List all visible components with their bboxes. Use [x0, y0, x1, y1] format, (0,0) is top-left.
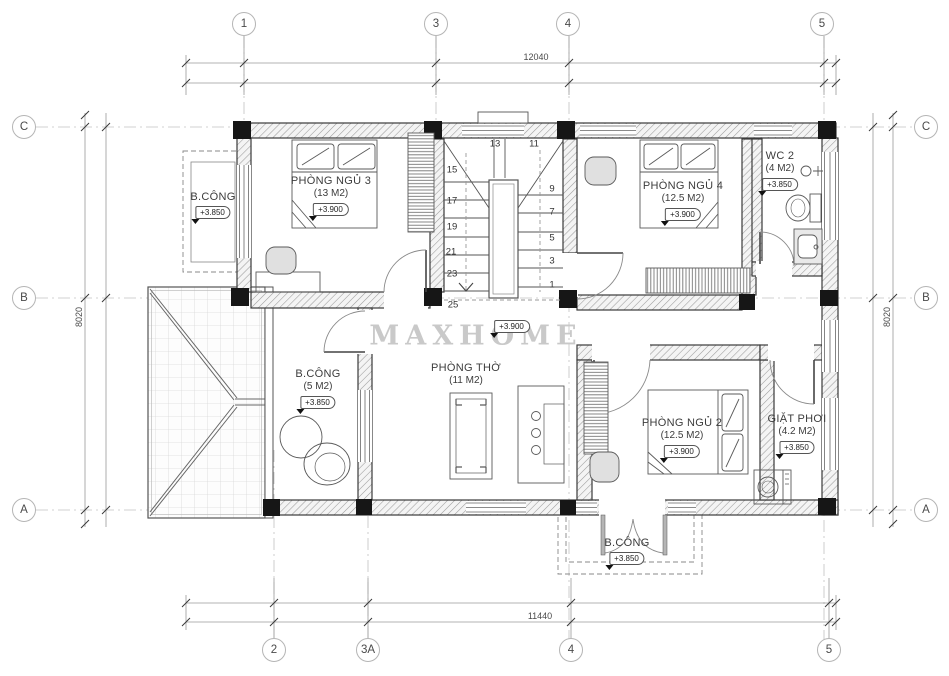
dimension-top: 12040 [523, 52, 548, 62]
room-label-bedroom4: PHÒNG NGỦ 4 (12.5 M2) +3.900 [643, 180, 723, 221]
level-tag: +3.850 [779, 441, 815, 454]
grid-bubble-right-b: B [914, 286, 938, 310]
dimension-left: 8020 [74, 307, 84, 327]
level-marker-icon [309, 216, 317, 221]
cabinet-icon [518, 386, 564, 483]
level-marker-icon [775, 454, 783, 459]
level-tag: +3.850 [300, 396, 336, 409]
room-area: (13 M2) [291, 188, 371, 200]
room-label-laundry: GIẶT PHƠI (4.2 M2) +3.850 [768, 413, 827, 454]
round-chair-icon [280, 416, 322, 458]
round-chair-icon [304, 443, 350, 485]
room-label-balcony-left: B.CÔNG (5 M2) +3.850 [295, 368, 340, 409]
grid-bubble-left-a: A [12, 498, 36, 522]
balcony-door-leaf [663, 515, 667, 555]
wardrobe-icon [408, 133, 434, 232]
altar-table-icon [450, 393, 492, 479]
level-tag: +3.900 [665, 208, 701, 221]
room-name: B.CÔNG [190, 191, 235, 203]
stair-number: 5 [549, 233, 554, 244]
level-tag: +3.850 [762, 178, 798, 191]
room-area: (11 M2) [431, 375, 501, 387]
grid-bubble-left-b: B [12, 286, 36, 310]
grid-bubble-bottom-2: 2 [262, 638, 286, 662]
room-name: WC 2 [762, 150, 798, 162]
room-label-balcony-bottom: B.CÔNG +3.850 [604, 537, 649, 565]
wardrobe-icon [646, 268, 750, 293]
stair-number: 13 [490, 139, 501, 150]
stair-number: 21 [446, 247, 457, 258]
room-name: B.CÔNG [604, 537, 649, 549]
stair-number: 25 [448, 300, 459, 311]
toilet-icon [786, 194, 821, 222]
room-area: (4 M2) [762, 163, 798, 175]
level-marker-icon [605, 565, 613, 570]
room-name: PHÒNG THỜ [431, 362, 501, 374]
grid-bubble-bottom-3a: 3A [356, 638, 380, 662]
level-tag: +3.900 [313, 203, 349, 216]
room-area: (4.2 M2) [768, 426, 827, 438]
room-label-wc2: WC 2 (4 M2) +3.850 [762, 150, 798, 191]
room-label-bedroom3: PHÒNG NGỦ 3 (13 M2) +3.900 [291, 175, 371, 216]
stair-number: 11 [529, 139, 539, 150]
level-marker-icon [660, 458, 668, 463]
dimension-right: 8020 [882, 307, 892, 327]
stair-number: 19 [447, 222, 458, 233]
level-marker-icon [490, 333, 498, 338]
grid-bubble-top-1: 1 [232, 12, 256, 36]
room-name: PHÒNG NGỦ 3 [291, 175, 371, 187]
exterior-ledge [478, 112, 528, 123]
grid-bubble-left-c: C [12, 115, 36, 139]
level-marker-icon [661, 221, 669, 226]
stair-number: 9 [549, 184, 554, 195]
faucet-icon [801, 166, 823, 176]
maxhome-watermark: MAXHOME [369, 321, 582, 352]
grid-bubble-right-c: C [914, 115, 938, 139]
stairs [444, 139, 563, 300]
level-marker-icon [758, 191, 766, 196]
room-label-worship: PHÒNG THỜ (11 M2) [431, 362, 501, 387]
sink-icon [794, 229, 822, 264]
floor-plan: MAXHOME 1 3 4 5 2 3A 4 5 C B A C B A 120… [0, 0, 949, 676]
roof-fascia [265, 287, 273, 518]
grid-bubble-bottom-5: 5 [817, 638, 841, 662]
room-name: GIẶT PHƠI [768, 413, 827, 425]
chair-icon [585, 157, 616, 185]
grid-bubble-top-4: 4 [556, 12, 580, 36]
room-name: B.CÔNG [295, 368, 340, 380]
grid-bubble-right-a: A [914, 498, 938, 522]
level-marker-icon [191, 219, 199, 224]
room-name: PHÒNG NGỦ 4 [643, 180, 723, 192]
grid-bubble-top-5: 5 [810, 12, 834, 36]
stair-number: 15 [447, 165, 458, 176]
stair-number: 7 [549, 207, 554, 218]
grid-bubble-bottom-4: 4 [559, 638, 583, 662]
level-tag: +3.900 [494, 320, 530, 333]
room-label-balcony-top-left: B.CÔNG +3.850 [190, 191, 235, 219]
room-label-bedroom2: PHÒNG NGỦ 2 (12.5 M2) +3.900 [642, 417, 722, 458]
room-area: (5 M2) [295, 381, 340, 393]
level-tag: +3.850 [195, 206, 231, 219]
stair-number: 23 [447, 269, 458, 280]
room-name: PHÒNG NGỦ 2 [642, 417, 722, 429]
wardrobe-icon [584, 362, 608, 454]
roof [148, 287, 273, 518]
stair-number: 17 [447, 196, 458, 207]
grid-bubble-top-3: 3 [424, 12, 448, 36]
room-area: (12.5 M2) [642, 430, 722, 442]
room-area: (12.5 M2) [643, 193, 723, 205]
level-marker-icon [296, 409, 304, 414]
chair-icon [266, 247, 296, 274]
hall-level-tag: +3.900 [494, 317, 530, 333]
chair-icon [590, 452, 619, 482]
level-tag: +3.900 [664, 445, 700, 458]
dimension-bottom: 11440 [528, 611, 552, 621]
stair-number: 3 [549, 256, 554, 267]
stair-number: 1 [549, 280, 554, 291]
level-tag: +3.850 [609, 552, 645, 565]
